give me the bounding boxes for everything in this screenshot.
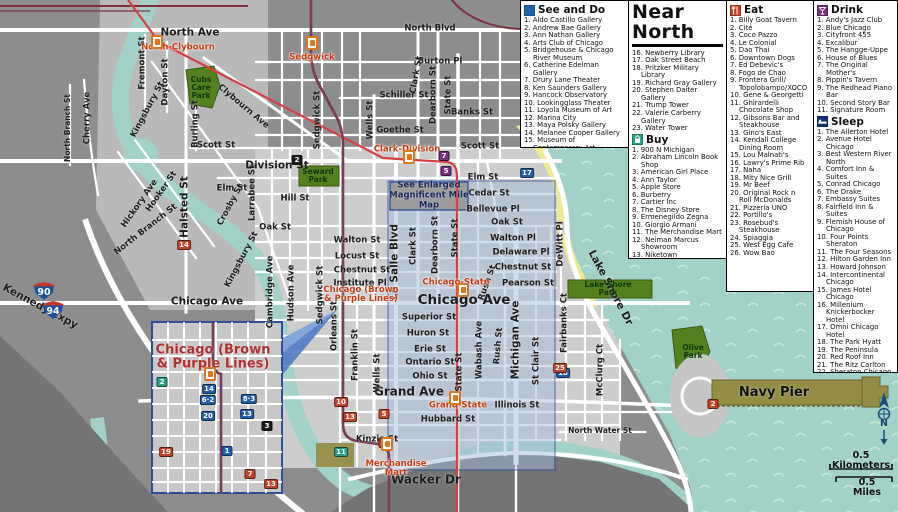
legend-item: 23. Rosebud's Steakhouse (730, 220, 810, 235)
drink-label: Drink (831, 4, 863, 16)
legend-item: 2. Avenue Hotel Chicago (817, 136, 894, 151)
eat-icon (730, 5, 741, 16)
contact-poi-marker: 3 (262, 421, 273, 431)
buy-poi-marker: 11 (334, 447, 348, 457)
train-station-icon (457, 283, 469, 297)
see-poi-marker: 1 (222, 446, 233, 456)
see-poi-marker: 20 (201, 411, 215, 421)
legend-item: 9. The Redhead Piano Bar (817, 85, 894, 100)
eat-header: Eat (730, 4, 810, 16)
buy-label: Buy (646, 134, 668, 146)
train-station-icon (204, 367, 216, 381)
sleep-label: Sleep (831, 116, 864, 128)
train-station-icon (403, 150, 415, 164)
eat-poi-marker: 2 (708, 399, 719, 409)
train-station-icon (381, 437, 393, 451)
eat-poi-marker: 13 (343, 412, 357, 422)
contact-poi-marker: 2 (292, 155, 303, 165)
eat-poi-marker: 10 (334, 397, 348, 407)
legend-drink-sleep-contact: Drink 1. Andy's Jazz Club2. Blue Chicago… (813, 0, 898, 373)
legend-item: 20. Original Rock n Roll McDonalds (730, 190, 810, 205)
see-poi-marker: 6·2 (200, 395, 216, 405)
legend-see-and-do: See and Do 1. Aldo Castillo Gallery2. An… (520, 0, 629, 148)
train-station-icon (151, 35, 163, 49)
train-station-icon (449, 391, 461, 405)
see-poi-marker: 8·3 (241, 394, 257, 404)
eat-poi-marker: 5 (379, 409, 390, 419)
legend-item: 2. Abraham Lincoln Book Shop (632, 154, 723, 169)
legend-item: 18. Pritzker Military Library (632, 65, 723, 80)
legend-near-north-buy: Near North 16. Newberry Library17. Oak S… (628, 0, 727, 259)
legend-item: 4. Comfort Inn & Suites (817, 166, 894, 181)
eat-poi-marker: 14 (177, 240, 191, 250)
legend-item: 9. Frontera Grill/ Topolobampo/XOCO (730, 77, 810, 92)
legend-item: 16. Millenium Knickerbocker Hotel (817, 302, 894, 325)
legend-item: 12. Neiman Marcus Showroom (632, 237, 723, 252)
legend-item: 14. Intercontinental Chicago (817, 272, 894, 287)
see-and-do-header: See and Do (524, 4, 625, 16)
legend-item: 15. Museum of Contemporary Art (524, 137, 625, 148)
eat-poi-marker: 25 (553, 363, 567, 373)
legend-item: 9. Flemish House of Chicago (817, 219, 894, 234)
see-poi-marker: 17 (520, 168, 534, 178)
legend-item: 22. Valerie Carberry Gallery (632, 110, 723, 125)
near-north-map: North AveNorth BlvdBurton PlSchiller StB… (0, 0, 898, 512)
legend-item: 22. Sheraton Chicago (817, 369, 894, 373)
drink-header: Drink (817, 4, 894, 16)
eat-label: Eat (744, 4, 763, 16)
legend-item: 11. Ghirardelli Chocolate Shop (730, 100, 810, 115)
legend-item: 23. Water Tower (632, 125, 723, 133)
drink-icon (817, 5, 828, 16)
sleep-header: Sleep (817, 116, 894, 128)
legend-item: 10. Four Points Sheraton (817, 234, 894, 249)
legend-item: 5. Bridgehouse & Chicago River Museum (524, 47, 625, 62)
buy-icon (632, 134, 643, 145)
map-title: Near North (632, 3, 723, 47)
see-and-do-icon (524, 5, 535, 16)
legend-item: 15. James Hotel Chicago (817, 287, 894, 302)
legend-item: 11. Signature Room (817, 107, 894, 115)
drink-poi-marker: 7 (439, 151, 450, 161)
legend-eat: Eat 1. Billy Goat Tavern2. Cité3. Coco P… (726, 0, 814, 292)
legend-item: 26. Wow Bao (730, 250, 810, 258)
legend-item: 8. Fairfield Inn & Suites (817, 204, 894, 219)
see-and-do-label: See and Do (538, 4, 605, 16)
legend-item: 20. Stephen Daiter Gallery (632, 87, 723, 102)
eat-poi-marker: 13 (264, 479, 278, 489)
see-poi-marker: 14 (202, 384, 216, 394)
eat-poi-marker: 19 (159, 447, 173, 457)
legend-item: 12. Gibsons Bar and Steakhouse (730, 115, 810, 130)
legend-item: 14. Kendall College Dining Room (730, 137, 810, 152)
legend-item: 6. Catherine Edelman Gallery (524, 62, 625, 77)
buy-header: Buy (632, 134, 723, 146)
legend-item: 3. Best Western River North (817, 151, 894, 166)
see-poi-marker: 13 (240, 409, 254, 419)
eat-poi-marker: 7 (245, 469, 256, 479)
legend-item: 7. The Original Mother's (817, 62, 894, 77)
drink-poi-marker: 5 (441, 166, 452, 176)
train-station-icon (306, 36, 318, 50)
legend-item: 17. Omni Chicago Hotel (817, 324, 894, 339)
sleep-icon (817, 116, 828, 127)
buy-poi-marker: 2 (157, 377, 168, 387)
